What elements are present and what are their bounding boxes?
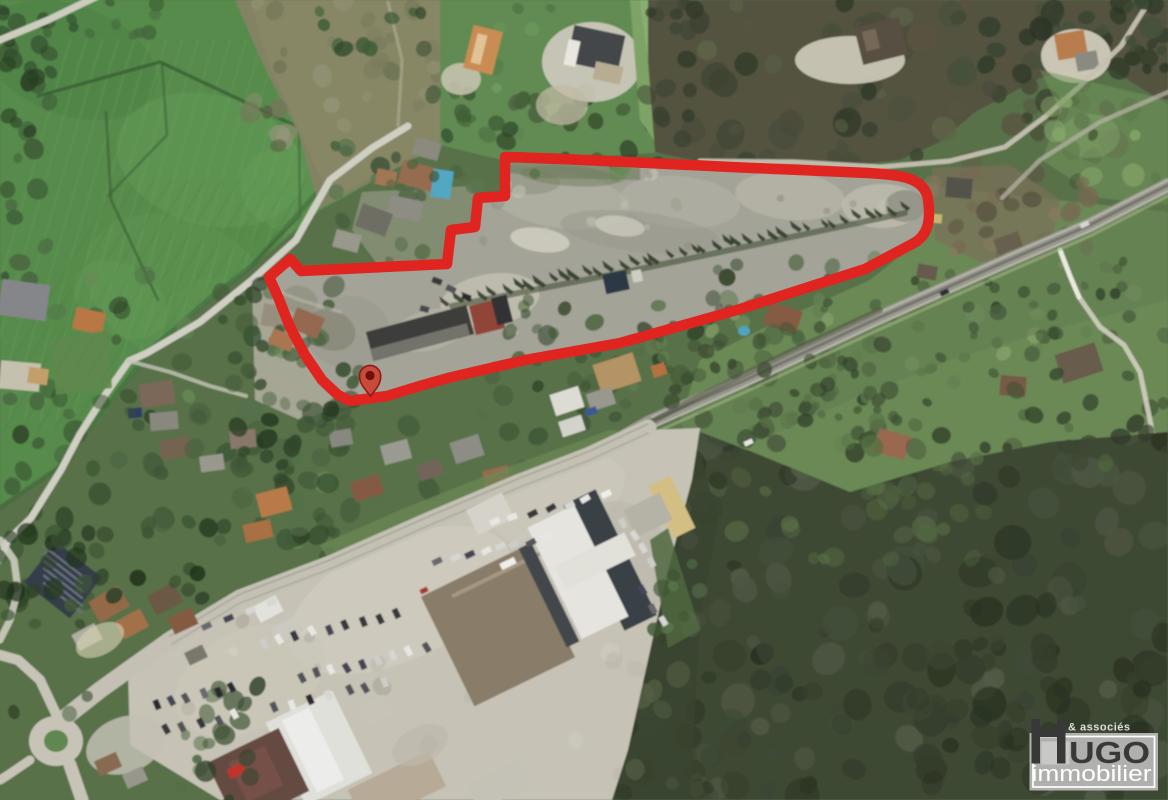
svg-text:& associés: & associés [1068, 722, 1130, 734]
svg-text:immobilier: immobilier [1032, 761, 1153, 786]
